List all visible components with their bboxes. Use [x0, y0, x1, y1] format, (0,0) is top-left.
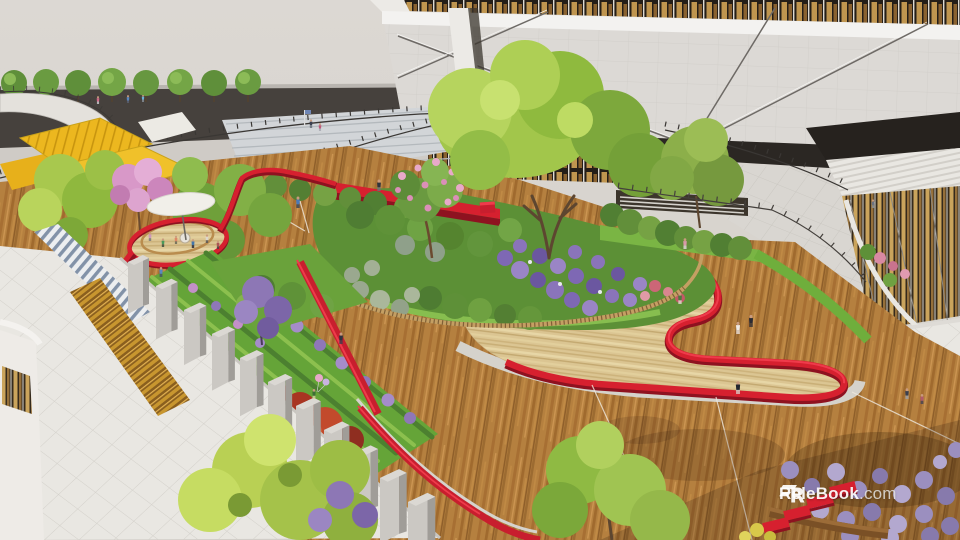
rendering-canvas: R ReleBook.com	[0, 0, 960, 540]
plaza-rendering	[0, 0, 960, 540]
